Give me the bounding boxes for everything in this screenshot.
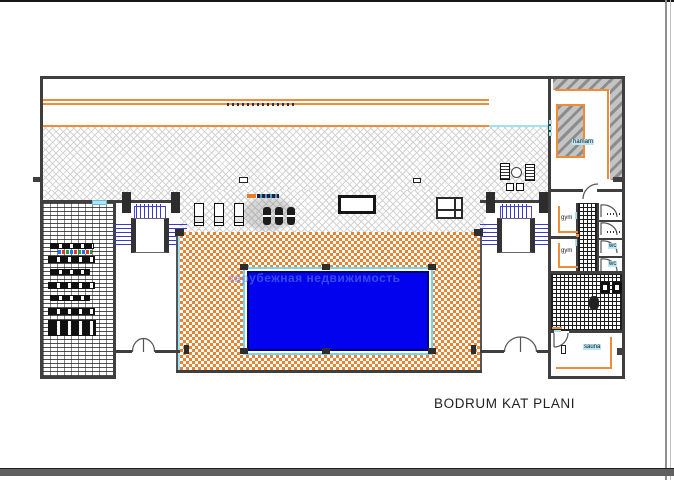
- stair-right-shaft: [497, 218, 535, 253]
- game-table-divider-v: [454, 199, 456, 217]
- shaft-cyan-tick-a: [575, 212, 577, 219]
- wc-lower-label-text: wc: [608, 261, 617, 267]
- plan-title: BODRUM KAT PLANI: [434, 396, 575, 411]
- deck-jamb-top-right: [474, 229, 483, 236]
- sauna-top-wall-b: [569, 330, 624, 333]
- wc-lower-label: wc: [608, 261, 617, 267]
- game-table-divider-h: [438, 209, 461, 211]
- sun-lounger-icon: [194, 203, 204, 226]
- deck-jamb-door-left: [184, 345, 189, 354]
- sauna-orange-h: [556, 367, 612, 369]
- shower-cabin-a: [600, 282, 610, 293]
- bar-stool-icon: [263, 207, 271, 225]
- sun-lounger-icon: [234, 203, 244, 226]
- sauna-wall-tick: [617, 348, 624, 355]
- column-marker: [239, 177, 248, 183]
- deck-jamb-door-right: [471, 345, 476, 354]
- bar-stool-icon: [287, 207, 295, 225]
- terrace-hatch-main: [43, 127, 550, 190]
- side-table-icon: [516, 183, 524, 191]
- hamam-orange-edge-v: [607, 89, 609, 179]
- watermark-text: зарубежная недвижимость: [228, 271, 401, 285]
- pool-post: [240, 348, 248, 354]
- wing-divider-wall-a: [548, 189, 583, 192]
- pool-post: [428, 348, 436, 354]
- stair-right-treads-top: [502, 204, 530, 218]
- hamam-orange-edge-h: [555, 89, 608, 91]
- shaft-cyan-tick-b: [575, 239, 577, 246]
- equipment-row: [50, 243, 94, 249]
- pool-post: [240, 264, 248, 270]
- game-table: [436, 197, 463, 219]
- mini-label-orange: [247, 194, 256, 198]
- wc-upper-label-text: wc: [608, 243, 617, 249]
- hall-bottom-wall-b: [155, 350, 180, 353]
- wall-top: [40, 76, 625, 79]
- equipment-block: [48, 320, 96, 336]
- page-border-top: [0, 0, 674, 2]
- pool-post: [322, 264, 330, 270]
- wing-divider-wall-b: [597, 189, 624, 192]
- wall-tick-exterior: [33, 177, 43, 182]
- gym-upper-label: gym: [561, 215, 572, 221]
- shaft-hatch-strip: [578, 203, 597, 273]
- gym-divider-wall: [551, 236, 578, 239]
- double-door-swing-icon: [132, 337, 155, 353]
- hamam-platform: [556, 104, 585, 158]
- orange-line-upper-1: [43, 99, 489, 101]
- stair-left-post-b: [171, 192, 180, 213]
- stair-left-post-a: [122, 192, 131, 213]
- side-table-icon: [506, 183, 514, 191]
- hamam-cyan-ticks: [549, 119, 552, 136]
- wall-left-room-bottom: [40, 376, 116, 379]
- column-marker: [413, 178, 421, 183]
- left-room: [43, 203, 113, 376]
- mini-color-label: [58, 250, 92, 254]
- sauna-orange-v: [610, 337, 612, 369]
- equipment-row: [50, 269, 90, 275]
- hamam-label: hamam: [572, 139, 594, 145]
- stair-left-treads-west: [113, 222, 131, 245]
- stair-right-post-a: [486, 192, 495, 213]
- hall-bottom-wall-d: [537, 350, 551, 353]
- sun-lounger-icon: [214, 203, 224, 226]
- hall-bottom-wall-a: [113, 350, 132, 353]
- stair-right-post-b: [539, 192, 548, 213]
- gym1-orange-v: [558, 206, 560, 233]
- sauna-heater-icon: [561, 345, 566, 354]
- bar-stool-icon: [275, 207, 283, 225]
- deck-bottom-wall: [176, 370, 482, 373]
- locker-dots-b: [607, 231, 620, 233]
- equipment-row: [50, 295, 90, 301]
- locker-dots-a: [607, 213, 620, 215]
- wc-door-swing-icon: [600, 222, 619, 237]
- wc-door-swing-icon: [600, 204, 619, 219]
- page-border-right-inner: [670, 0, 671, 480]
- floor-plan-canvas: hamam gym gym wc wc sauna: [0, 0, 674, 480]
- gym1-orange-h: [558, 231, 578, 233]
- deck-jamb-top-left: [175, 229, 184, 236]
- wc-upper-label: wc: [608, 243, 617, 249]
- page-border-right: [665, 0, 667, 480]
- dimension-tick-row: [227, 103, 295, 106]
- wall-right: [622, 76, 625, 379]
- gym2-orange-v: [558, 243, 560, 268]
- cyan-marker: [92, 200, 107, 205]
- counter-table: [338, 195, 376, 214]
- stair-left-treads-top: [136, 204, 164, 218]
- shower-orange-tick: [552, 327, 562, 329]
- mini-label-blue: [257, 194, 279, 198]
- wall-wing-bottom: [548, 376, 625, 379]
- pool-post: [428, 264, 436, 270]
- page-border-bottom: [0, 468, 674, 476]
- armchair-icon: [500, 163, 510, 180]
- double-door-swing-icon: [504, 336, 537, 353]
- shower-cabin-b: [612, 282, 622, 293]
- equipment-row: [48, 308, 95, 315]
- equipment-row: [48, 282, 95, 289]
- hamam-label-text: hamam: [572, 139, 594, 145]
- hamam-hatch-band-right: [610, 79, 622, 180]
- hamam-wall-tick: [613, 177, 625, 182]
- stair-right-treads-east: [535, 222, 549, 245]
- gym2-orange-h: [558, 266, 578, 268]
- equipment-row: [48, 256, 95, 263]
- shaft-orange-tick: [576, 234, 579, 237]
- stair-left-shaft: [131, 218, 169, 253]
- toilet-icon: [589, 296, 599, 310]
- hall-bottom-wall-c: [480, 350, 504, 353]
- pool-post: [322, 348, 330, 354]
- hamam-door-swing-icon: [582, 183, 599, 200]
- armchair-icon: [525, 164, 535, 181]
- sauna-label-text: sauna: [583, 344, 601, 350]
- round-table-icon: [511, 167, 522, 178]
- gym-lower-label: gym: [561, 248, 572, 254]
- sauna-label: sauna: [583, 344, 601, 350]
